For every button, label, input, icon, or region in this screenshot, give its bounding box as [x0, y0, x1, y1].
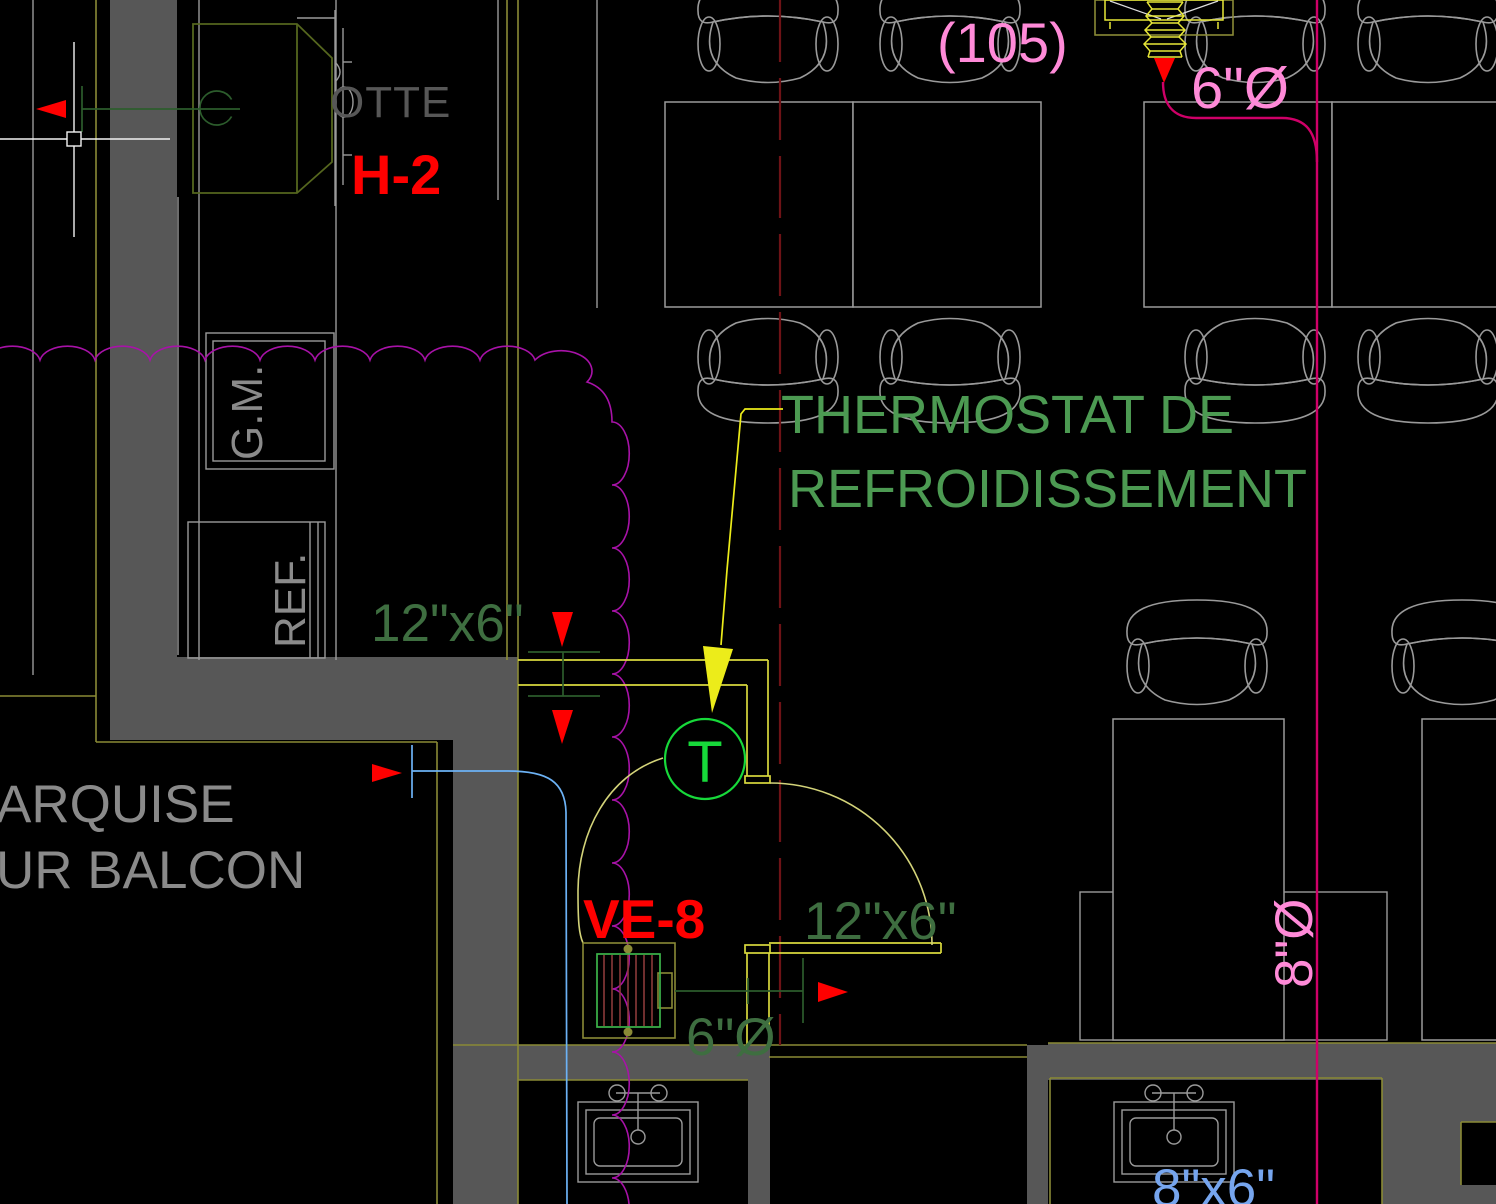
flow-arrow-down [552, 710, 573, 744]
table [1332, 102, 1496, 307]
flow-arrow-down [552, 612, 573, 647]
thermostat-note-line2: REFROIDISSEMENT [788, 459, 1307, 519]
sink-left [578, 1085, 698, 1182]
thermostat-symbol [665, 409, 783, 799]
flex-duct-bellows [1144, 2, 1186, 57]
door-jamb-bottom [745, 945, 770, 953]
hood-tag-label: H-2 [351, 143, 441, 206]
duct-size-label-6-bottom: 6"Ø [686, 1008, 776, 1067]
floor-plan-drawing: (105) 6"Ø OTTE H-2 G.M. REF. THERMOSTAT … [0, 0, 1496, 1204]
leader-line [721, 409, 783, 645]
thermostat-letter: T [687, 730, 722, 795]
duct-size-label-8-right: 8"Ø [1265, 898, 1324, 988]
room-number-label: (105) [937, 11, 1068, 74]
gm-label: G.M. [223, 365, 272, 460]
flow-arrow-right [818, 982, 848, 1002]
flow-arrow-down [1154, 58, 1175, 83]
ref-label: REF. [266, 553, 315, 648]
duct-size-label-8x6: 8"x6" [1152, 1159, 1275, 1204]
table [853, 102, 1041, 307]
supply-riser-symbol [528, 612, 600, 744]
marquise-label-line2: UR BALCON [0, 841, 305, 900]
leader-arrowhead [703, 646, 733, 713]
duct-size-label-6-top: 6"Ø [1191, 56, 1289, 121]
exhaust-arrow-left [36, 100, 66, 118]
thermostat-note-line1: THERMOSTAT DE [781, 385, 1234, 445]
marquise-label-line1: ARQUISE [0, 775, 235, 834]
duct-size-label-12x6-a: 12"x6" [371, 594, 524, 653]
cad-viewport[interactable]: (105) 6"Ø OTTE H-2 G.M. REF. THERMOSTAT … [0, 0, 1496, 1204]
hood-h2-appliance [36, 10, 353, 206]
table [1422, 719, 1496, 1040]
table [1144, 102, 1332, 307]
office-chair [1358, 0, 1496, 83]
office-chair [698, 0, 838, 83]
pickbox [67, 132, 81, 146]
flow-arrow-right [372, 764, 402, 782]
table [665, 102, 853, 307]
duct-size-label-12x6-b: 12"x6" [804, 892, 957, 951]
dining-furniture [665, 0, 1496, 1040]
hood-name-label: OTTE [330, 78, 451, 127]
duct-12x6-run [518, 660, 941, 1045]
door-jamb-top [745, 776, 770, 783]
table [1113, 719, 1284, 1040]
office-chair [1127, 600, 1267, 705]
office-chair [1392, 600, 1496, 705]
ve8-tag-label: VE-8 [583, 888, 705, 950]
office-chair [1358, 319, 1496, 424]
